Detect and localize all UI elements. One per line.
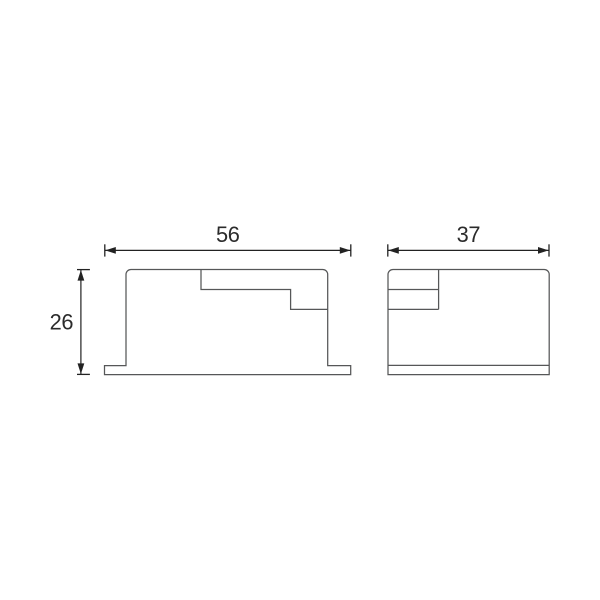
svg-text:26: 26 xyxy=(50,309,74,334)
svg-text:37: 37 xyxy=(457,222,481,247)
svg-text:56: 56 xyxy=(216,222,240,247)
